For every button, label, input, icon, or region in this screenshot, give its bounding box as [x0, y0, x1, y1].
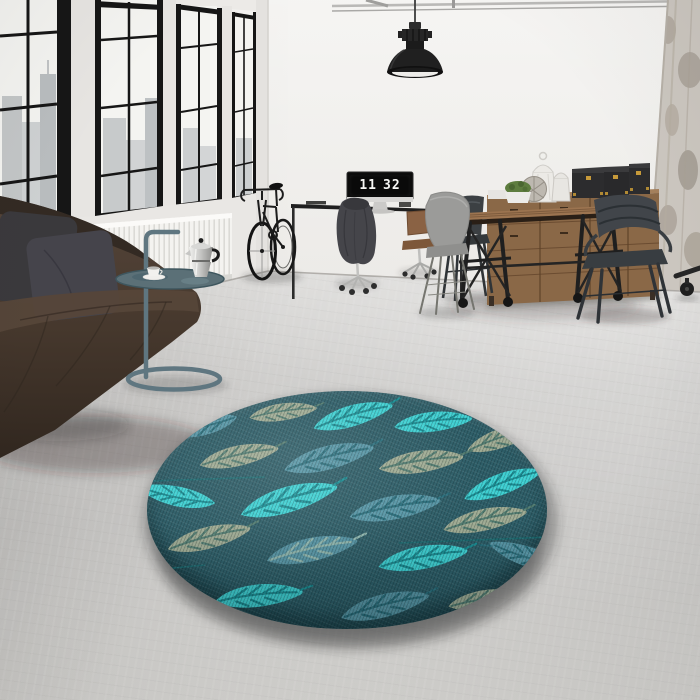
loft-room-photo: 11 32 — [0, 0, 700, 700]
photo-vignette — [0, 0, 700, 700]
